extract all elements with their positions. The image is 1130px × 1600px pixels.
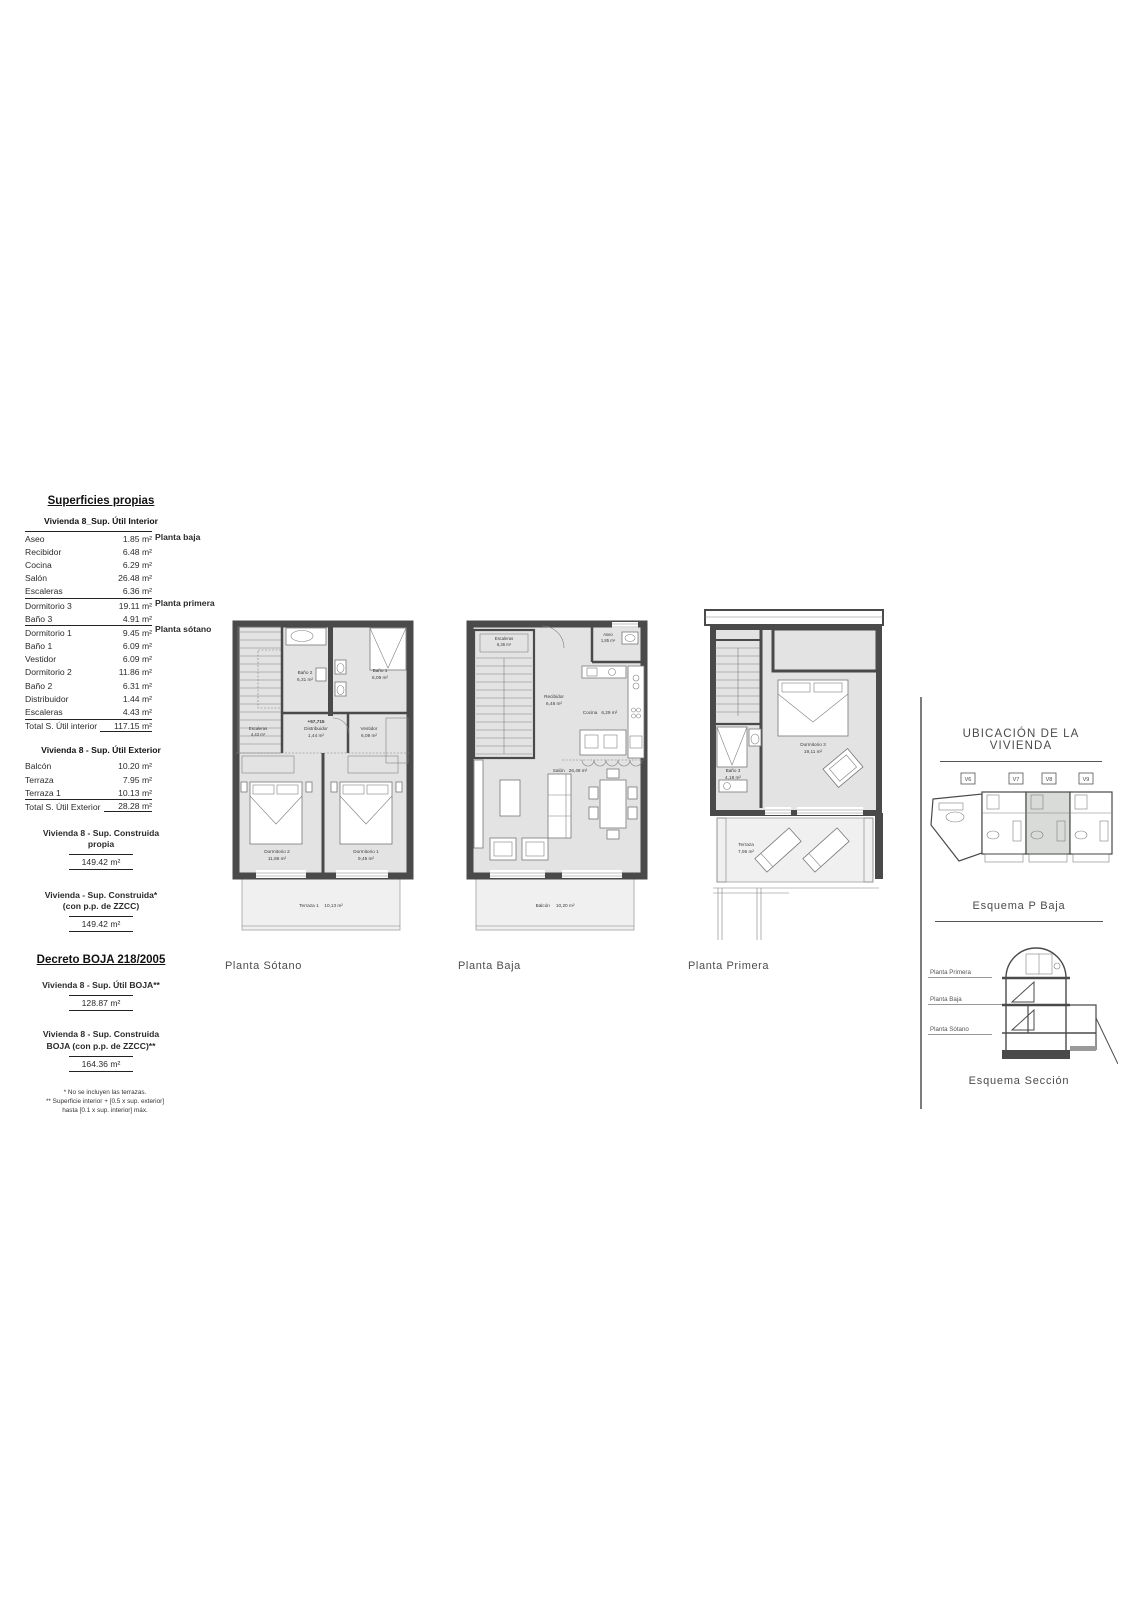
row-value: 7.95 m²: [123, 775, 152, 785]
table-row: Terraza 110.13 m²: [25, 786, 152, 799]
row-value: 1.85 m²: [123, 534, 152, 544]
room-area-bano3: 4,18 m²: [725, 775, 741, 780]
row-label: Recibidor: [25, 547, 61, 557]
row-value: 19.11 m²: [119, 601, 152, 611]
bed-icon: [340, 782, 392, 844]
balcony: [985, 854, 1023, 862]
row-label: Cocina: [25, 560, 52, 570]
unit-v8-highlighted: [1026, 792, 1070, 854]
tv-sideboard: [474, 760, 483, 848]
title-line: Vivienda 8 - Sup. Construida: [43, 1029, 159, 1039]
table-row: Escaleras4.43 m²: [25, 705, 152, 718]
vertical-divider: [920, 697, 922, 1109]
toilet-icon: [749, 729, 761, 746]
row-label: Total S. Útil interior: [25, 721, 97, 731]
row-label: Distribuidor: [25, 694, 68, 704]
exterior-table: Balcón10.20 m² Terraza7.95 m² Terraza 11…: [25, 760, 152, 814]
shower-icon: [370, 628, 406, 670]
construida-zzcc-title: Vivienda - Sup. Construida* (con p.p. de…: [25, 890, 177, 912]
room-label-bano2: Baño 2: [298, 670, 313, 675]
row-value: 6.48 m²: [123, 547, 152, 557]
row-label: Escaleras: [25, 707, 63, 717]
construida-boja-title: Vivienda 8 - Sup. Construida BOJA (con p…: [25, 1029, 177, 1051]
title-line: Vivienda - Sup. Construida*: [45, 890, 158, 900]
kitchen-counter: [628, 666, 644, 758]
room-area-dormitorio1: 9,45 m²: [358, 856, 374, 861]
table-row: Baño 34.91 m²: [25, 612, 152, 625]
table-row: Distribuidor1.44 m²: [25, 692, 152, 705]
roof-strip: [705, 610, 883, 625]
row-value: 6.09 m²: [123, 654, 152, 664]
superficies-title: Superficies propias: [25, 495, 177, 507]
caption-planta-sotano: Planta Sótano: [225, 960, 302, 972]
table-row: Cocina6.29 m²: [25, 558, 152, 571]
room-area-bano2: 6,31 m²: [297, 677, 313, 682]
location-title: UBICACIÓN DE LA VIVIENDA: [940, 728, 1102, 762]
room-label-balcon: Balcón10,20 m²: [536, 903, 575, 908]
row-value: 11.86 m²: [119, 667, 152, 677]
room-label-vestidor: Vestidor: [361, 726, 378, 731]
row-label: Baño 1: [25, 641, 52, 651]
esquema-p-baja-title: Esquema P Baja: [935, 900, 1103, 922]
row-label: Dormitorio 2: [25, 667, 72, 677]
construida-propia-title: Vivienda 8 - Sup. Construida propia: [25, 828, 177, 850]
title-line: propia: [88, 839, 114, 849]
room-label-terraza: Terraza: [738, 842, 754, 847]
row-value: 26.48 m²: [118, 573, 152, 583]
site-plan: V6 V7 V8 V9: [925, 765, 1120, 875]
section-label-planta-baja: Planta Baja: [930, 996, 962, 1003]
util-boja-title: Vivienda 8 - Sup. Útil BOJA**: [25, 980, 177, 991]
floorplan-baja-drawing: Escaleras 6,36 m² Aseo 1,85 m² Recibidor…: [462, 610, 652, 940]
room-area-vestidor: 6,09 m²: [361, 733, 377, 738]
decreto-title: Decreto BOJA 218/2005: [25, 954, 177, 966]
section-schema-drawing: Planta Primera Planta Baja Planta Sótano: [928, 938, 1118, 1068]
interior-table: Planta baja Planta primera Planta sótano…: [25, 531, 152, 733]
room-label-bano3: Baño 3: [726, 768, 741, 773]
title-line: Vivienda 8 - Sup. Construida: [43, 828, 159, 838]
svg-text:V9: V9: [1083, 777, 1090, 783]
room-area-dormitorio3: 19,11 m²: [804, 749, 823, 754]
terraza1-name: Terraza 1: [299, 903, 319, 908]
footnotes: * No se incluyen las terrazas. ** Superf…: [25, 1088, 185, 1116]
table-row: Dormitorio 19.45 m²: [25, 625, 152, 639]
esquema-seccion-title: Esquema Sección: [935, 1075, 1103, 1087]
row-label: Salón: [25, 573, 47, 583]
base-slab: [1002, 1050, 1070, 1059]
group-label-planta-baja: Planta baja: [155, 532, 227, 542]
footnote-2: ** Superficie interior + [0.5 x sup. ext…: [46, 1098, 164, 1105]
bed-icon: [778, 680, 848, 736]
unit-v9: [1070, 792, 1112, 854]
room-label-escaleras: Escaleras: [249, 726, 267, 731]
group-label-planta-primera: Planta primera: [155, 598, 227, 608]
document-canvas: { "superficies": { "title": "Superficies…: [0, 0, 1130, 1600]
row-value: 10.13 m²: [118, 788, 152, 798]
row-value: 117.15 m²: [100, 721, 152, 732]
svg-text:V7: V7: [1013, 777, 1020, 783]
row-label: Dormitorio 1: [25, 628, 72, 638]
row-label: Escaleras: [25, 586, 63, 596]
title-line: BOJA (con p.p. de ZZCC)**: [46, 1041, 155, 1051]
terraza1-floor: [242, 878, 400, 930]
salon-area: 26,48 m²: [569, 768, 588, 773]
room-label-salon: Salón26,48 m²: [553, 768, 588, 773]
row-label: Terraza: [25, 775, 54, 785]
cocina-name: Cocina: [583, 710, 598, 715]
sofa-icon: [548, 774, 571, 838]
room-label-recibidor: Recibidor: [544, 694, 564, 699]
floorplan-primera-drawing: Dormitorio 3 19,11 m² Baño 3 4,18 m² Ter…: [693, 596, 888, 944]
sink-icon: [622, 632, 638, 644]
elevation-label: +57,715: [307, 719, 324, 724]
room-area-dormitorio2: 11,86 m²: [268, 856, 287, 861]
interior-subtitle: Vivienda 8_Sup. Útil Interior: [25, 516, 177, 526]
footnote-3: hasta [0.1 x sup. interior] máx.: [62, 1107, 148, 1114]
svg-text:V6: V6: [965, 777, 972, 783]
row-label: Baño 2: [25, 681, 52, 691]
floorplan-sotano-drawing: Baño 2 6,31 m² Baño 1 6,09 m² +57,715 Di…: [228, 610, 418, 940]
construida-boja-value: 164.36 m²: [69, 1056, 133, 1072]
row-value: 6.09 m²: [123, 641, 152, 651]
section-schema: Planta Primera Planta Baja Planta Sótano: [928, 938, 1118, 1073]
row-value: 4.43 m²: [123, 707, 152, 717]
room-label-aseo: Aseo: [603, 632, 613, 637]
group-label-planta-sotano: Planta sótano: [155, 624, 227, 634]
table-row: Recibidor6.48 m²: [25, 545, 152, 558]
construida-propia-value: 149.42 m²: [69, 854, 133, 870]
sink-icon: [316, 668, 326, 681]
unit-label-v6: V6: [961, 773, 975, 784]
unit-label-v8: V8: [1042, 773, 1056, 784]
caption-planta-primera: Planta Primera: [688, 960, 769, 972]
room-label-dormitorio3: Dormitorio 3: [800, 742, 826, 747]
room-area-escaleras: 6,36 m²: [497, 642, 512, 647]
areas-panel: Superficies propias Vivienda 8_Sup. Útil…: [25, 495, 210, 1116]
table-row: Vestidor6.09 m²: [25, 653, 152, 666]
room-label-dormitorio2: Dormitorio 2: [264, 849, 290, 854]
row-value: 10.20 m²: [118, 761, 152, 771]
room-label-escaleras: Escaleras: [495, 636, 513, 641]
row-value: 6.36 m²: [123, 586, 152, 596]
table-row: Dormitorio 319.11 m²: [25, 598, 152, 612]
toilet-icon: [335, 660, 346, 674]
row-value: 28.28 m²: [104, 801, 152, 812]
plan-planta-sotano: Baño 2 6,31 m² Baño 1 6,09 m² +57,715 Di…: [228, 610, 418, 945]
footnote-1: * No se incluyen las terrazas.: [64, 1089, 147, 1096]
bathtub-icon: [286, 628, 326, 645]
table-row: Baño 26.31 m²: [25, 679, 152, 692]
row-value: 1.44 m²: [123, 694, 152, 704]
shower-icon: [717, 727, 747, 767]
terraza1-area: 10,13 m²: [324, 903, 343, 908]
total-interior-row: Total S. Útil interior117.15 m²: [25, 719, 152, 733]
table-row: Dormitorio 211.86 m²: [25, 666, 152, 679]
total-exterior-row: Total S. Útil Exterior28.28 m²: [25, 799, 152, 813]
room-area-escaleras: 4,43 m²: [251, 732, 266, 737]
construida-zzcc-value: 149.42 m²: [69, 916, 133, 932]
room-label-distribuidor: Distribuidor: [304, 726, 328, 731]
toilet-icon: [335, 682, 346, 696]
room-area-terraza: 7,95 m²: [738, 849, 754, 854]
table-row: Aseo1.85 m²: [25, 531, 152, 545]
row-label: Dormitorio 3: [25, 601, 72, 611]
row-label: Total S. Útil Exterior: [25, 802, 100, 812]
table-row: Terraza7.95 m²: [25, 773, 152, 786]
section-label-planta-sotano: Planta Sótano: [930, 1026, 969, 1033]
svg-text:V8: V8: [1046, 777, 1053, 783]
balcony: [1073, 854, 1109, 862]
row-value: 6.31 m²: [123, 681, 152, 691]
row-label: Vestidor: [25, 654, 56, 664]
row-label: Balcón: [25, 761, 51, 771]
caption-planta-baja: Planta Baja: [458, 960, 521, 972]
balcon-area: 10,20 m²: [556, 903, 575, 908]
site-plan-drawing: V6 V7 V8 V9: [925, 765, 1120, 870]
room-area-bano1: 6,09 m²: [372, 675, 388, 680]
balcon-name: Balcón: [536, 903, 551, 908]
table-row: Balcón10.20 m²: [25, 760, 152, 773]
row-label: Baño 3: [25, 614, 52, 624]
cocina-area: 6,29 m²: [601, 710, 617, 715]
row-label: Terraza 1: [25, 788, 61, 798]
bed-icon: [250, 782, 302, 844]
kitchen-island: [580, 730, 626, 755]
unit-label-v7: V7: [1009, 773, 1023, 784]
room-area-recibidor: 6,48 m²: [546, 701, 562, 706]
room-area-distribuidor: 1,44 m²: [308, 733, 324, 738]
row-label: Aseo: [25, 534, 45, 544]
salon-name: Salón: [553, 768, 565, 773]
row-value: 4.91 m²: [123, 614, 152, 624]
table-row: Baño 16.09 m²: [25, 640, 152, 653]
room-label-bano1: Baño 1: [373, 668, 388, 673]
plan-planta-baja: Escaleras 6,36 m² Aseo 1,85 m² Recibidor…: [462, 610, 652, 945]
section-label-planta-primera: Planta Primera: [930, 969, 971, 976]
util-boja-value: 128.87 m²: [69, 995, 133, 1011]
unit-v6: [931, 794, 982, 861]
room-label-dormitorio1: Dormitorio 1: [353, 849, 379, 854]
row-value: 9.45 m²: [123, 628, 152, 638]
balcony: [1029, 854, 1067, 862]
side-table: [500, 780, 520, 816]
plan-planta-primera: Dormitorio 3 19,11 m² Baño 3 4,18 m² Ter…: [693, 596, 888, 949]
title-line: (con p.p. de ZZCC): [63, 901, 139, 911]
side-slab: [1070, 1046, 1096, 1051]
exterior-subtitle: Vivienda 8 - Sup. Útil Exterior: [25, 745, 177, 755]
unit-v7: [982, 792, 1026, 854]
table-row: Escaleras6.36 m²: [25, 585, 152, 598]
row-value: 6.29 m²: [123, 560, 152, 570]
unit-label-v9: V9: [1079, 773, 1093, 784]
table-row: Salón26.48 m²: [25, 572, 152, 585]
room-area-aseo: 1,85 m²: [601, 638, 616, 643]
